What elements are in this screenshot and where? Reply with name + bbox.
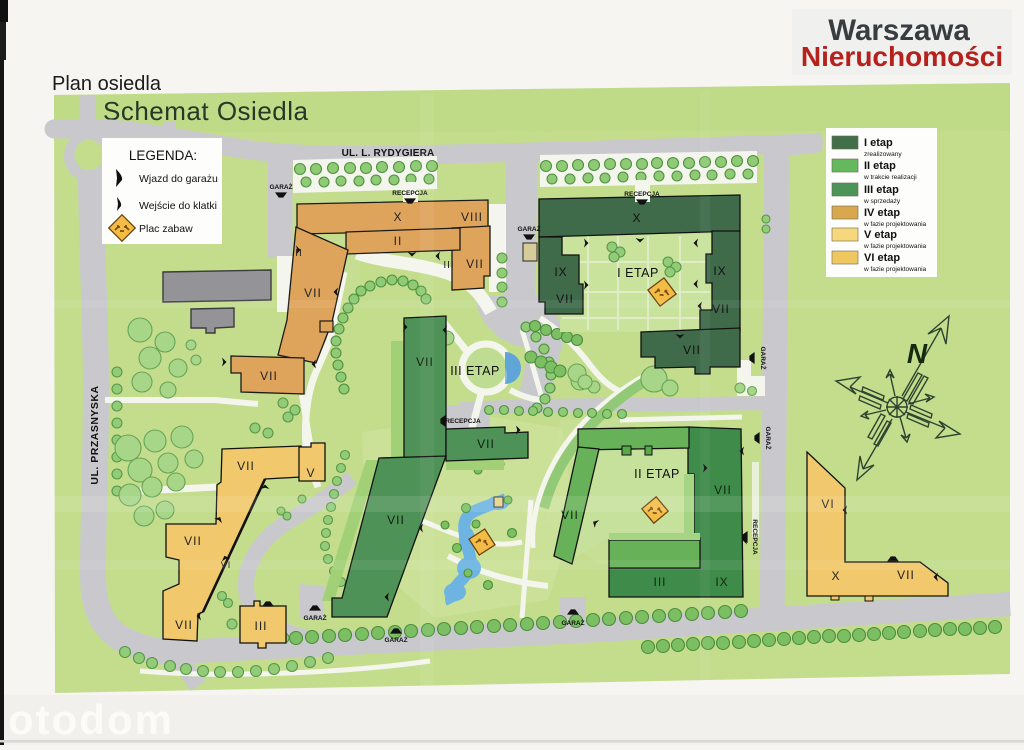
svg-text:Wjazd do garażu: Wjazd do garażu (139, 173, 218, 185)
svg-text:VII: VII (683, 343, 701, 357)
svg-text:UL. PRZASNYSKA: UL. PRZASNYSKA (89, 385, 101, 484)
svg-text:X: X (393, 210, 402, 224)
svg-text:VII: VII (897, 568, 915, 582)
svg-text:otodom: otodom (8, 696, 174, 743)
svg-text:VII: VII (466, 257, 484, 271)
svg-text:VII: VII (175, 618, 193, 632)
svg-text:X: X (831, 569, 840, 583)
svg-text:GARAŻ: GARAŻ (561, 619, 584, 627)
svg-text:RECEPCJA: RECEPCJA (751, 519, 758, 555)
svg-text:N: N (907, 338, 928, 369)
svg-text:VI etap: VI etap (864, 252, 900, 264)
svg-text:X: X (632, 211, 641, 225)
svg-text:VIII: VIII (461, 210, 483, 224)
svg-text:IX: IX (713, 264, 726, 278)
svg-text:Nieruchomości: Nieruchomości (801, 41, 1003, 72)
svg-text:Plac zabaw: Plac zabaw (139, 223, 193, 235)
svg-text:II etap: II etap (864, 160, 896, 172)
svg-text:VII: VII (304, 286, 322, 300)
svg-text:VII: VII (477, 437, 495, 451)
svg-text:III: III (653, 575, 666, 589)
svg-text:GARAŻ: GARAŻ (384, 636, 407, 644)
svg-text:III: III (443, 260, 454, 271)
svg-text:w fazie projektowania: w fazie projektowania (863, 221, 927, 228)
svg-text:III: III (254, 619, 267, 633)
svg-text:RECEPCJA: RECEPCJA (624, 191, 660, 198)
svg-text:VII: VII (184, 534, 202, 548)
svg-text:w fazie projektowania: w fazie projektowania (863, 266, 927, 273)
svg-text:w fazie projektowania: w fazie projektowania (863, 243, 927, 250)
svg-text:VII: VII (387, 513, 405, 527)
svg-text:Schemat Osiedla: Schemat Osiedla (103, 96, 309, 126)
svg-text:RECEPCJA: RECEPCJA (445, 418, 481, 425)
svg-text:II ETAP: II ETAP (634, 467, 680, 481)
svg-text:V: V (306, 466, 315, 480)
svg-text:III ETAP: III ETAP (450, 364, 500, 378)
svg-text:IX: IX (715, 575, 728, 589)
svg-text:GARAŻ: GARAŻ (517, 225, 540, 233)
svg-text:V etap: V etap (864, 229, 897, 241)
svg-text:VII: VII (237, 459, 255, 473)
svg-text:GARAŻ: GARAŻ (759, 346, 767, 369)
svg-text:zrealizowany: zrealizowany (864, 151, 902, 158)
svg-text:GARAŻ: GARAŻ (269, 183, 292, 191)
svg-text:Wejście do klatki: Wejście do klatki (139, 200, 217, 212)
svg-text:I etap: I etap (864, 137, 893, 149)
svg-text:w sprzedaży: w sprzedaży (863, 198, 901, 205)
svg-text:III etap: III etap (864, 184, 899, 196)
svg-text:I ETAP: I ETAP (617, 266, 659, 280)
svg-text:w trakcie realizacji: w trakcie realizacji (863, 174, 917, 181)
svg-text:IX: IX (554, 265, 567, 279)
svg-text:GARAŻ: GARAŻ (764, 426, 772, 449)
svg-text:II: II (394, 234, 403, 248)
svg-text:VII: VII (714, 483, 732, 497)
svg-text:IV etap: IV etap (864, 207, 900, 219)
svg-text:LEGENDA:: LEGENDA: (129, 148, 197, 163)
svg-text:Plan osiedla: Plan osiedla (52, 73, 162, 95)
svg-text:GARAŻ: GARAŻ (303, 614, 326, 622)
svg-text:VII: VII (260, 369, 278, 383)
